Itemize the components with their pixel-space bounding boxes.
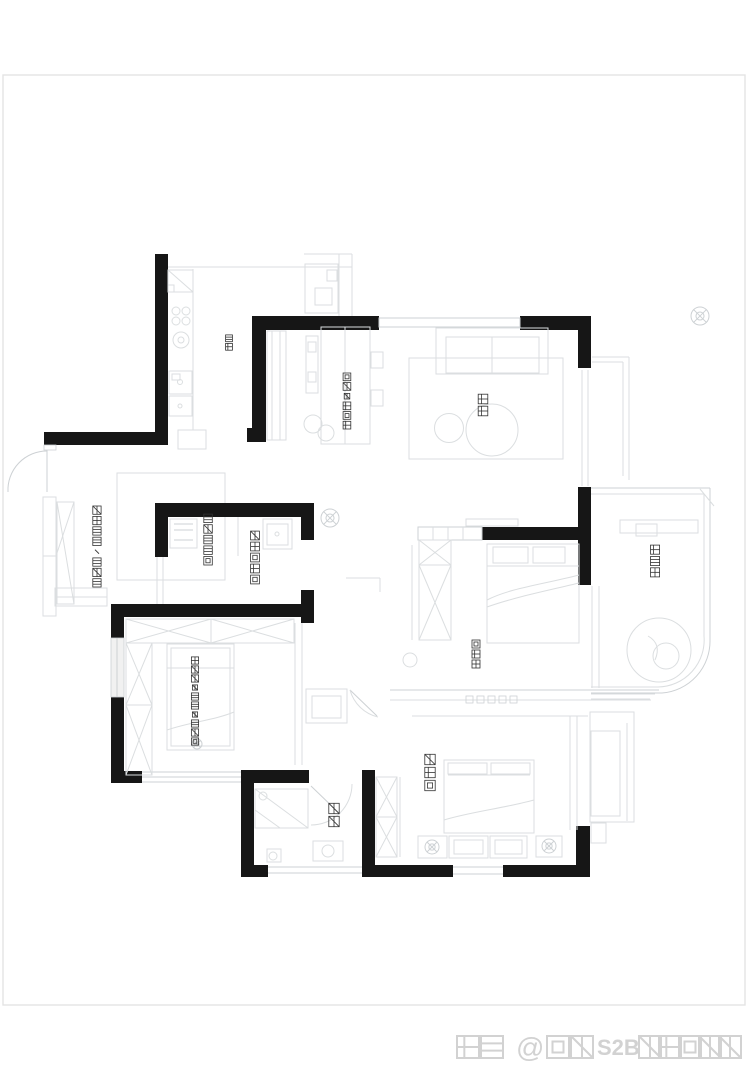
svg-text:@: @	[516, 1032, 544, 1063]
svg-text:S2B: S2B	[597, 1035, 640, 1060]
